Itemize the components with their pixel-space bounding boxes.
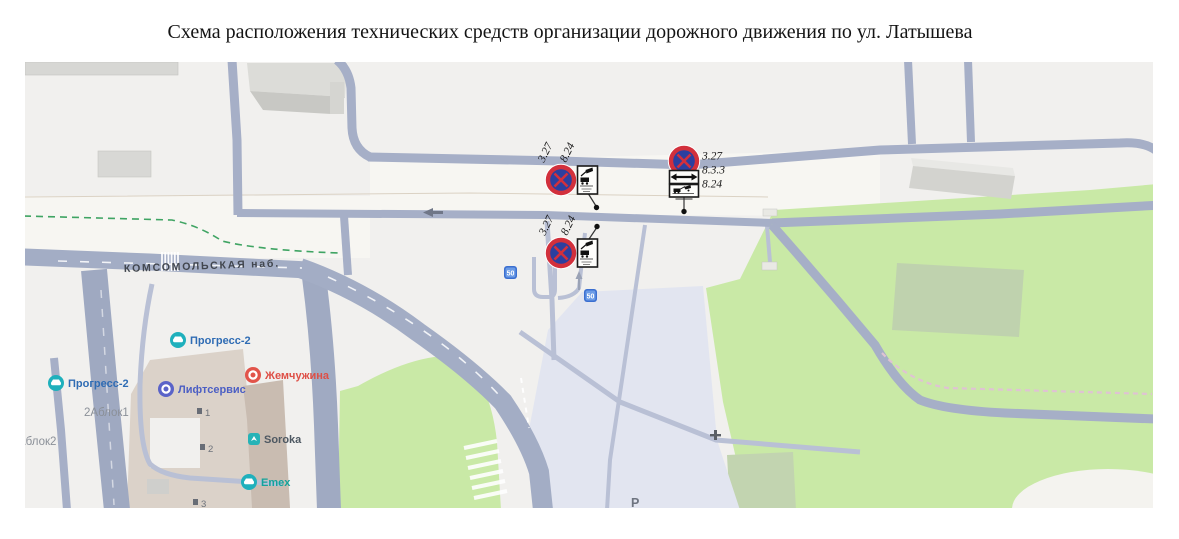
poi-soroka: Soroka: [248, 433, 302, 446]
poi-progress2-top: Прогресс-2: [170, 332, 251, 348]
tow-truck-plate-icon: [578, 239, 598, 267]
sign-label: 8.24: [702, 179, 722, 191]
both-directions-plate-icon: [670, 171, 699, 184]
traffic-scheme-page: Схема расположения технических средств о…: [0, 0, 1179, 539]
ring-icon: [245, 367, 261, 383]
park-field-2: [727, 452, 796, 510]
scheme-canvas: Схема расположения технических средств о…: [0, 0, 1179, 539]
car-service-icon: [48, 375, 64, 391]
svg-text:Жемчужина: Жемчужина: [264, 370, 330, 382]
svg-text:50: 50: [507, 271, 515, 278]
address-block2: Аблок2: [18, 436, 56, 448]
car-service-icon: [241, 474, 257, 490]
tow-truck-plate-icon: [578, 166, 598, 194]
leader-dot: [594, 224, 599, 229]
sign-label: 3.27: [701, 151, 723, 163]
svg-text:2: 2: [208, 444, 213, 455]
svg-text:1: 1: [205, 408, 210, 419]
no-stopping-sign-icon: [546, 165, 577, 196]
house-icon: [197, 408, 202, 414]
park-field: [892, 263, 1024, 337]
poi-emex: Emex: [241, 474, 291, 490]
no-stopping-sign-icon: [546, 238, 577, 269]
leader-dot: [594, 205, 599, 210]
svg-text:50: 50: [587, 294, 595, 301]
poi-zhemchuzhina: Жемчужина: [245, 367, 330, 383]
svg-text:Прогресс-2: Прогресс-2: [68, 378, 129, 390]
parking-letter: Р: [631, 496, 639, 510]
poi-liftservice: Лифтсервис: [158, 381, 246, 397]
speed-badge-2: 50: [584, 289, 597, 302]
svg-text:Soroka: Soroka: [264, 434, 302, 446]
sign-label: 8.3.3: [702, 165, 725, 177]
car-service-icon: [170, 332, 186, 348]
svg-text:Прогресс-2: Прогресс-2: [190, 335, 251, 347]
house-icon: [200, 444, 205, 450]
house-icon: [193, 499, 198, 505]
svg-text:3: 3: [201, 499, 206, 510]
svg-text:Emex: Emex: [261, 477, 291, 489]
ring-icon: [158, 381, 174, 397]
courtyard: [150, 418, 200, 468]
svg-text:Лифтсервис: Лифтсервис: [178, 384, 246, 396]
bird-icon: [248, 433, 260, 445]
page-title: Схема расположения технических средств о…: [168, 21, 973, 43]
speed-badge-1: 50: [504, 266, 517, 279]
poi-progress2-bottom: Прогресс-2: [48, 375, 129, 391]
tow-truck-plate-icon: [670, 185, 699, 198]
address-block1: 2Аблок1: [84, 407, 129, 419]
map: КОМСОМОЛЬСКАЯ наб. Р 2Аблок1 Аблок2 1 2 …: [18, 60, 1179, 539]
leader-dot: [681, 209, 686, 214]
